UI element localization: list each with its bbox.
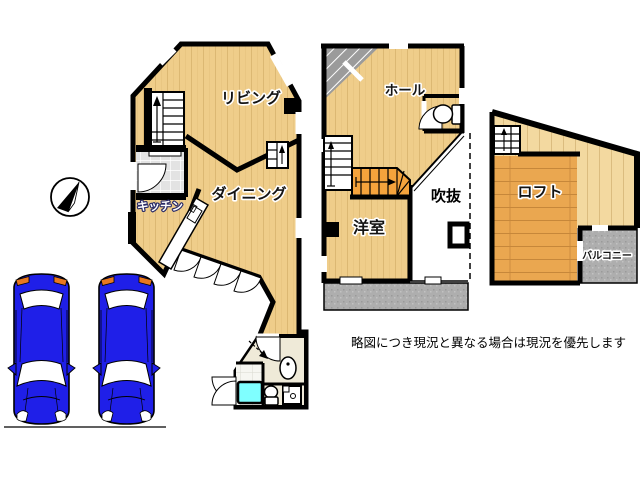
room-label-dining: ダイニング xyxy=(211,185,286,203)
room-label-loft: ロフト xyxy=(517,184,562,201)
room-label-hall: ホール xyxy=(385,83,426,98)
room-label-western-room: 洋室 xyxy=(353,218,385,237)
toilet-icon xyxy=(265,386,279,405)
stairs-loft xyxy=(494,126,520,154)
room-label-balcony: バルコニー xyxy=(582,250,632,262)
bathtub-icon xyxy=(238,382,262,403)
floor-plan-loft: ロフト バルコニー xyxy=(492,112,637,283)
car-top-view-icon xyxy=(93,274,160,424)
side-mirror xyxy=(8,363,16,375)
balcony-door xyxy=(425,277,441,284)
washer-unit xyxy=(283,386,301,404)
room-label-living: リビング xyxy=(221,89,281,107)
floorplan-image: リビング ダイニング キッチン xyxy=(0,0,640,480)
room-label-atrium: 吹抜 xyxy=(431,187,462,205)
wall xyxy=(144,88,152,148)
car-top-view-icon xyxy=(8,274,75,424)
room-label-kitchen: キッチン xyxy=(137,200,183,213)
wall xyxy=(128,212,136,244)
stairs-1f xyxy=(150,92,184,148)
floorplan-page: リビング ダイニング キッチン xyxy=(0,0,640,480)
balcony-door xyxy=(340,277,362,284)
side-mirror xyxy=(152,363,160,375)
side-mirror xyxy=(67,363,75,375)
annotation-text: 略図につき現況と異なる場合は現況を優先します xyxy=(351,335,626,350)
loft-dark-wood xyxy=(492,156,577,283)
wall xyxy=(284,98,299,114)
compass-north-icon xyxy=(51,178,89,216)
side-mirror xyxy=(93,363,101,375)
toilet-icon xyxy=(434,105,462,124)
wall xyxy=(324,222,339,237)
wall xyxy=(136,145,186,152)
balcony-2f xyxy=(324,283,468,310)
step-box xyxy=(267,142,288,168)
void-pillar xyxy=(450,224,467,246)
floor-plan-2f: ホール 洋室 吹抜 xyxy=(321,44,470,310)
wall xyxy=(136,193,186,200)
washbasin-icon xyxy=(280,357,296,379)
